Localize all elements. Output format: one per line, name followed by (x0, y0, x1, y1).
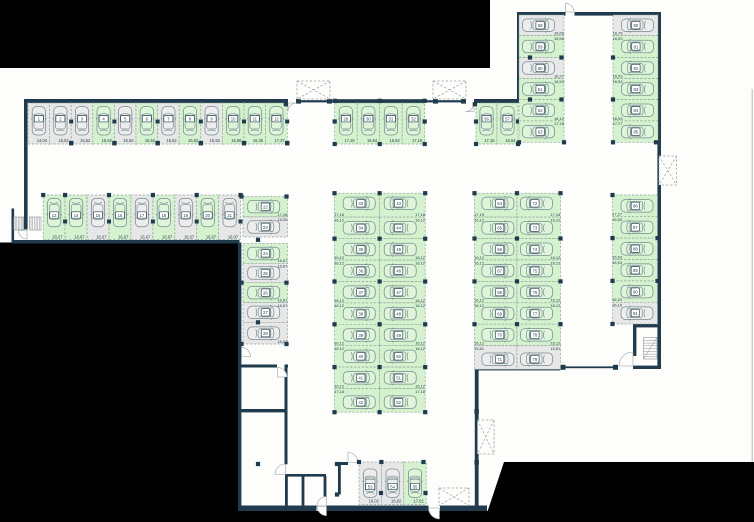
svg-text:64: 64 (497, 201, 502, 206)
svg-text:76: 76 (533, 290, 538, 295)
svg-text:49: 49 (396, 333, 401, 338)
svg-text:30: 30 (366, 117, 371, 122)
svg-text:16,75: 16,75 (613, 30, 623, 35)
svg-text:65: 65 (497, 226, 502, 231)
svg-text:80: 80 (634, 23, 639, 28)
svg-text:78: 78 (533, 333, 538, 338)
svg-text:24: 24 (263, 251, 268, 256)
svg-text:50: 50 (396, 354, 401, 359)
svg-text:51: 51 (396, 376, 401, 381)
svg-text:16,67: 16,67 (96, 235, 107, 240)
svg-text:16,67: 16,67 (140, 235, 151, 240)
svg-text:81: 81 (634, 44, 639, 49)
svg-text:53: 53 (368, 484, 373, 489)
svg-text:16,53: 16,53 (612, 260, 622, 265)
svg-text:16,65: 16,65 (554, 30, 564, 35)
svg-text:33: 33 (358, 201, 363, 206)
svg-text:84: 84 (634, 108, 639, 113)
svg-text:45: 45 (396, 247, 401, 252)
svg-text:15,81: 15,81 (474, 346, 484, 351)
svg-text:16,12: 16,12 (551, 298, 561, 303)
svg-text:15,52: 15,52 (188, 138, 199, 143)
svg-text:29: 29 (344, 117, 349, 122)
svg-text:87: 87 (633, 225, 638, 230)
svg-text:16,07: 16,07 (228, 235, 239, 240)
svg-text:59: 59 (538, 44, 543, 49)
svg-text:16,12: 16,12 (551, 341, 561, 346)
svg-text:16,12: 16,12 (334, 217, 344, 222)
svg-text:16,67: 16,67 (74, 235, 85, 240)
svg-text:16,02: 16,02 (391, 498, 402, 503)
svg-text:16: 16 (118, 213, 123, 218)
svg-text:17,18: 17,18 (551, 212, 561, 217)
svg-text:74: 74 (533, 247, 538, 252)
svg-text:79: 79 (533, 357, 538, 362)
svg-text:16,12: 16,12 (334, 383, 344, 388)
svg-text:12: 12 (274, 117, 279, 122)
svg-text:16,53: 16,53 (554, 79, 564, 84)
svg-text:16,53: 16,53 (613, 36, 623, 41)
svg-text:14,04: 14,04 (37, 138, 48, 143)
svg-text:25: 25 (263, 271, 268, 276)
svg-text:16,12: 16,12 (551, 217, 561, 222)
svg-text:16,86: 16,86 (231, 138, 242, 143)
svg-text:17,18: 17,18 (415, 389, 425, 394)
svg-text:16,12: 16,12 (474, 217, 484, 222)
svg-text:16,12: 16,12 (415, 341, 425, 346)
svg-text:77: 77 (533, 311, 538, 316)
svg-text:15,81: 15,81 (551, 346, 561, 351)
svg-text:15,52: 15,52 (210, 138, 221, 143)
svg-text:14: 14 (74, 213, 79, 218)
svg-text:16,20: 16,20 (612, 297, 623, 302)
svg-text:72: 72 (533, 201, 538, 206)
svg-text:68: 68 (497, 290, 502, 295)
svg-text:17,18: 17,18 (278, 212, 288, 217)
svg-text:82: 82 (634, 66, 639, 71)
svg-text:42: 42 (358, 400, 363, 405)
svg-text:18: 18 (161, 213, 166, 218)
svg-text:17,18: 17,18 (334, 212, 344, 217)
svg-text:70: 70 (497, 333, 502, 338)
svg-text:15,52: 15,52 (58, 138, 69, 143)
svg-text:16,54: 16,54 (505, 138, 516, 143)
svg-text:88: 88 (633, 247, 638, 252)
svg-text:16,53: 16,53 (613, 73, 623, 78)
svg-text:54: 54 (390, 484, 395, 489)
svg-text:27: 27 (263, 310, 268, 315)
svg-text:20: 20 (205, 213, 210, 218)
svg-text:16,12: 16,12 (415, 217, 425, 222)
svg-text:16,67: 16,67 (162, 235, 173, 240)
svg-text:44: 44 (396, 226, 401, 231)
svg-text:16,53: 16,53 (612, 254, 622, 259)
svg-text:16,54: 16,54 (367, 138, 378, 143)
svg-text:16,12: 16,12 (334, 298, 344, 303)
svg-text:17,16: 17,16 (344, 138, 355, 143)
svg-text:16,67: 16,67 (278, 303, 288, 308)
svg-text:62: 62 (538, 108, 543, 113)
svg-text:16,12: 16,12 (415, 260, 425, 265)
svg-text:17,19: 17,19 (474, 212, 484, 217)
svg-text:36: 36 (358, 269, 363, 274)
svg-text:73: 73 (533, 226, 538, 231)
svg-text:52: 52 (396, 400, 401, 405)
svg-text:17,18: 17,18 (415, 212, 425, 217)
svg-text:16,12: 16,12 (415, 303, 425, 308)
svg-text:16,35: 16,35 (253, 138, 264, 143)
svg-text:15,66: 15,66 (554, 36, 564, 41)
svg-text:16,12: 16,12 (415, 346, 425, 351)
svg-text:63: 63 (538, 129, 543, 134)
svg-text:71: 71 (497, 357, 502, 362)
svg-text:16,54: 16,54 (389, 138, 400, 143)
svg-text:15,52: 15,52 (102, 138, 113, 143)
svg-text:16,12: 16,12 (474, 255, 484, 260)
svg-text:16,67: 16,67 (118, 235, 129, 240)
svg-text:26: 26 (263, 290, 268, 295)
svg-text:39: 39 (358, 333, 363, 338)
svg-text:16,00: 16,00 (278, 217, 289, 222)
svg-text:16,12: 16,12 (415, 255, 425, 260)
svg-text:38: 38 (358, 311, 363, 316)
svg-text:37: 37 (358, 290, 363, 295)
svg-text:16,12: 16,12 (334, 303, 344, 308)
svg-text:90: 90 (633, 289, 638, 294)
svg-text:16,53: 16,53 (613, 116, 623, 121)
svg-text:43: 43 (396, 201, 401, 206)
svg-text:35: 35 (358, 247, 363, 252)
svg-text:16,67: 16,67 (184, 235, 195, 240)
svg-text:16,12: 16,12 (551, 255, 561, 260)
svg-text:61: 61 (538, 87, 543, 92)
svg-text:16,12: 16,12 (474, 298, 484, 303)
svg-text:16,12: 16,12 (334, 341, 344, 346)
svg-text:23: 23 (263, 225, 268, 230)
svg-text:75: 75 (533, 269, 538, 274)
svg-text:55: 55 (413, 484, 418, 489)
svg-text:15,52: 15,52 (80, 138, 91, 143)
svg-text:48: 48 (396, 311, 401, 316)
svg-text:89: 89 (633, 268, 638, 273)
svg-text:69: 69 (497, 311, 502, 316)
svg-text:56: 56 (484, 117, 489, 122)
svg-text:17,02: 17,02 (413, 498, 424, 503)
svg-text:86: 86 (633, 204, 638, 209)
svg-text:60: 60 (538, 66, 543, 71)
svg-text:17,18: 17,18 (554, 121, 564, 126)
svg-text:16,12: 16,12 (334, 255, 344, 260)
svg-text:16,27: 16,27 (554, 73, 564, 78)
svg-text:16,12: 16,12 (551, 260, 561, 265)
svg-text:17,18: 17,18 (334, 389, 344, 394)
svg-text:57: 57 (505, 117, 510, 122)
svg-text:16,67: 16,67 (278, 264, 288, 269)
svg-text:31: 31 (389, 117, 394, 122)
svg-text:91: 91 (633, 311, 638, 316)
svg-text:17,37: 17,37 (274, 138, 285, 143)
svg-text:66: 66 (497, 247, 502, 252)
svg-text:67: 67 (497, 269, 502, 274)
svg-text:28: 28 (263, 331, 268, 336)
svg-text:20,27: 20,27 (52, 235, 63, 240)
svg-text:41: 41 (358, 376, 363, 381)
svg-text:34: 34 (358, 226, 363, 231)
svg-text:16,12: 16,12 (334, 346, 344, 351)
svg-text:11: 11 (253, 117, 258, 122)
svg-text:15,52: 15,52 (166, 138, 177, 143)
svg-text:47: 47 (396, 290, 401, 295)
svg-text:13: 13 (52, 213, 57, 218)
svg-text:16,12: 16,12 (474, 260, 484, 265)
svg-text:46: 46 (396, 269, 401, 274)
svg-text:15,52: 15,52 (123, 138, 134, 143)
svg-text:16,02: 16,02 (369, 498, 380, 503)
svg-text:16,67: 16,67 (278, 297, 288, 302)
svg-text:16,53: 16,53 (612, 217, 622, 222)
svg-text:58: 58 (538, 23, 543, 28)
svg-text:16,67: 16,67 (278, 258, 288, 263)
svg-text:16,53: 16,53 (613, 79, 623, 84)
svg-text:17,27: 17,27 (613, 121, 623, 126)
svg-text:16,16: 16,16 (612, 303, 622, 308)
svg-text:19: 19 (183, 213, 188, 218)
svg-text:21: 21 (227, 213, 232, 218)
svg-text:17,27: 17,27 (612, 212, 622, 217)
svg-text:10: 10 (231, 117, 236, 122)
svg-text:16,12: 16,12 (415, 383, 425, 388)
svg-text:32: 32 (411, 117, 416, 122)
svg-text:16,12: 16,12 (554, 116, 564, 121)
svg-text:16,12: 16,12 (334, 260, 344, 265)
svg-text:17,16: 17,16 (412, 138, 423, 143)
svg-text:16,12: 16,12 (415, 298, 425, 303)
svg-text:15: 15 (96, 213, 101, 218)
svg-text:85: 85 (634, 129, 639, 134)
svg-text:22: 22 (263, 205, 268, 210)
svg-text:16,67: 16,67 (206, 235, 217, 240)
svg-text:16,12: 16,12 (474, 303, 484, 308)
svg-text:83: 83 (634, 87, 639, 92)
svg-text:15,52: 15,52 (145, 138, 156, 143)
svg-text:17: 17 (140, 213, 145, 218)
svg-text:16,12: 16,12 (551, 303, 561, 308)
svg-text:17,16: 17,16 (484, 138, 495, 143)
svg-text:16,12: 16,12 (474, 341, 484, 346)
svg-text:40: 40 (358, 354, 363, 359)
